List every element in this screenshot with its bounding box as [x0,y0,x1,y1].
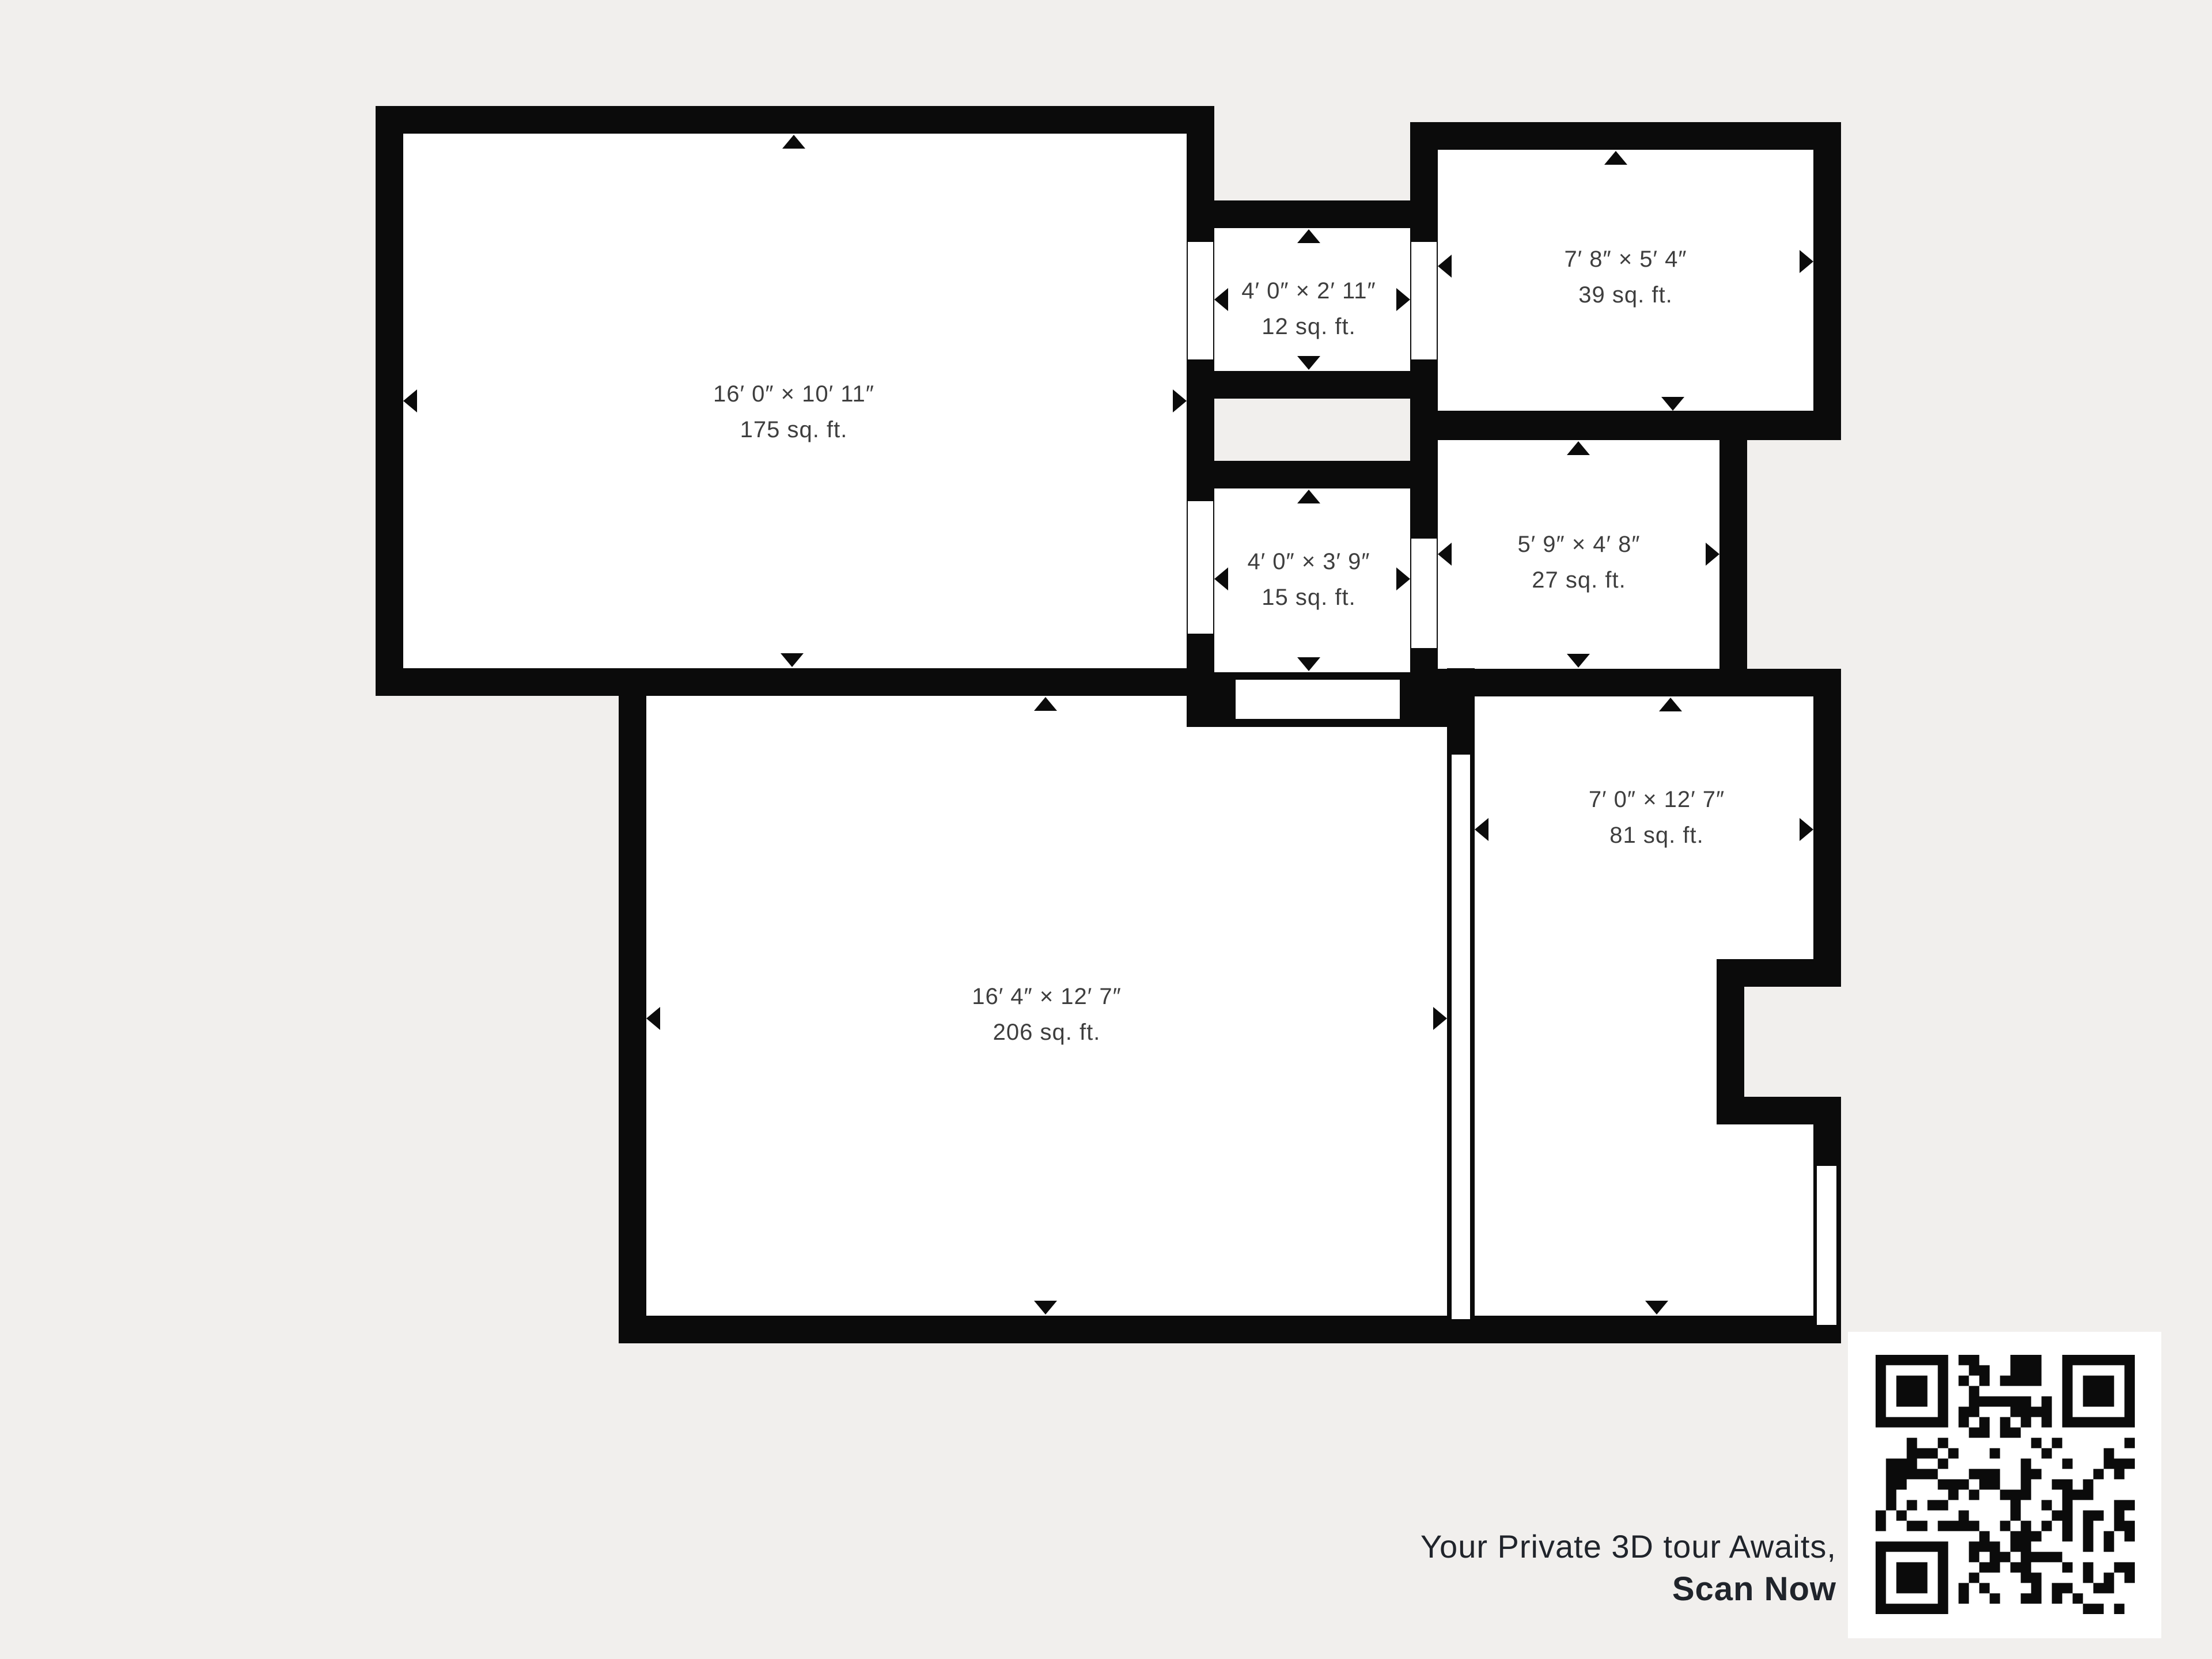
room-15-area: 15 sq. ft. [1247,579,1370,615]
room-175-label: 16′ 0″ × 10′ 11″ 175 sq. ft. [713,376,874,448]
wall-a-right [1187,106,1214,727]
dimension-arrow-down-icon [781,653,804,667]
tour-caption: Your Private 3D tour Awaits, Scan Now [1421,1525,1836,1611]
room-12-label: 4′ 0″ × 2′ 11″ 12 sq. ft. [1241,273,1376,344]
tour-caption-line2: Scan Now [1421,1568,1836,1611]
dimension-arrow-right-icon [1396,288,1410,311]
door-e-d [1411,539,1437,648]
room-27-area: 27 sq. ft. [1517,562,1640,598]
room-206-label: 16′ 4″ × 12′ 7″ 206 sq. ft. [972,979,1122,1050]
door-a-e [1188,501,1213,634]
room-206-dimensions: 16′ 4″ × 12′ 7″ [972,979,1122,1014]
wall-f-left [619,668,646,1343]
dimension-arrow-left-icon [1214,288,1228,311]
dimension-arrow-down-icon [1661,397,1684,411]
exterior-notch [1744,987,1841,1097]
room-12-area: 12 sq. ft. [1241,309,1376,344]
wall-b-top [1187,200,1438,228]
door-e-f [1236,680,1400,719]
dimension-arrow-up-icon [1604,151,1627,165]
dimension-arrow-right-icon [1396,567,1410,590]
room-81-area: 81 sq. ft. [1589,817,1725,853]
dimension-arrow-left-icon [403,389,417,412]
dimension-arrow-left-icon [1475,818,1488,841]
dimension-arrow-right-icon [1706,543,1719,566]
dimension-arrow-right-icon [1433,1007,1447,1030]
dimension-arrow-up-icon [1297,490,1320,503]
dimension-arrow-down-icon [1297,356,1320,370]
dimension-arrow-left-icon [1214,567,1228,590]
wall-a-left [376,106,403,696]
floor-plan-page: { "page": { "background": "#f1efed" }, "… [0,0,2212,1659]
door-b-c [1411,242,1437,359]
wall-c-bottom [1410,411,1841,440]
room-175-area: 175 sq. ft. [713,412,874,448]
room-39-label: 7′ 8″ × 5′ 4″ 39 sq. ft. [1564,241,1687,313]
room-39-area: 39 sq. ft. [1564,277,1687,313]
room-39-dimensions: 7′ 8″ × 5′ 4″ [1564,241,1687,277]
wall-a-top [376,106,1214,134]
dimension-arrow-up-icon [1297,229,1320,243]
dimension-arrow-up-icon [1034,697,1057,711]
wall-notch-bottom [1717,1097,1841,1124]
dimension-arrow-left-icon [1438,543,1452,566]
dimension-arrow-left-icon [646,1007,660,1030]
room-12-dimensions: 4′ 0″ × 2′ 11″ [1241,273,1376,309]
tour-caption-line1: Your Private 3D tour Awaits, [1421,1525,1836,1568]
wall-g-right-upper [1813,669,1841,987]
room-27-label: 5′ 9″ × 4′ 8″ 27 sq. ft. [1517,527,1640,598]
dimension-arrow-down-icon [1034,1301,1057,1315]
dimension-arrow-up-icon [782,135,805,149]
door-g-ext [1817,1166,1836,1325]
wall-b-bottom [1187,371,1438,399]
room-206-area: 206 sq. ft. [972,1014,1122,1050]
room-81-label: 7′ 0″ × 12′ 7″ 81 sq. ft. [1589,782,1725,853]
wall-g-top-band [1410,669,1841,696]
dimension-arrow-right-icon [1800,250,1813,273]
wall-d-right [1719,411,1747,696]
dimension-arrow-left-icon [1438,255,1452,278]
dimension-arrow-right-icon [1173,389,1187,412]
wall-bottom-band [619,1316,1841,1343]
room-27-dimensions: 5′ 9″ × 4′ 8″ [1517,527,1640,562]
wall-e-top [1187,461,1438,488]
dimension-arrow-down-icon [1567,654,1590,668]
wall-c-right [1813,122,1841,438]
room-175-dimensions: 16′ 0″ × 10′ 11″ [713,376,874,412]
room-15-label: 4′ 0″ × 3′ 9″ 15 sq. ft. [1247,544,1370,615]
wall-a-bottom [376,668,1214,696]
dimension-arrow-up-icon [1659,698,1682,711]
room-15-dimensions: 4′ 0″ × 3′ 9″ [1247,544,1370,579]
room-81-dimensions: 7′ 0″ × 12′ 7″ [1589,782,1725,817]
dimension-arrow-down-icon [1645,1301,1668,1315]
dimension-arrow-right-icon [1800,818,1813,841]
qr-code [1876,1355,2135,1614]
dimension-arrow-down-icon [1297,657,1320,671]
door-f-g [1452,755,1470,1319]
dimension-arrow-up-icon [1567,441,1590,455]
wall-c-top [1410,122,1841,150]
door-a-b [1188,242,1213,359]
